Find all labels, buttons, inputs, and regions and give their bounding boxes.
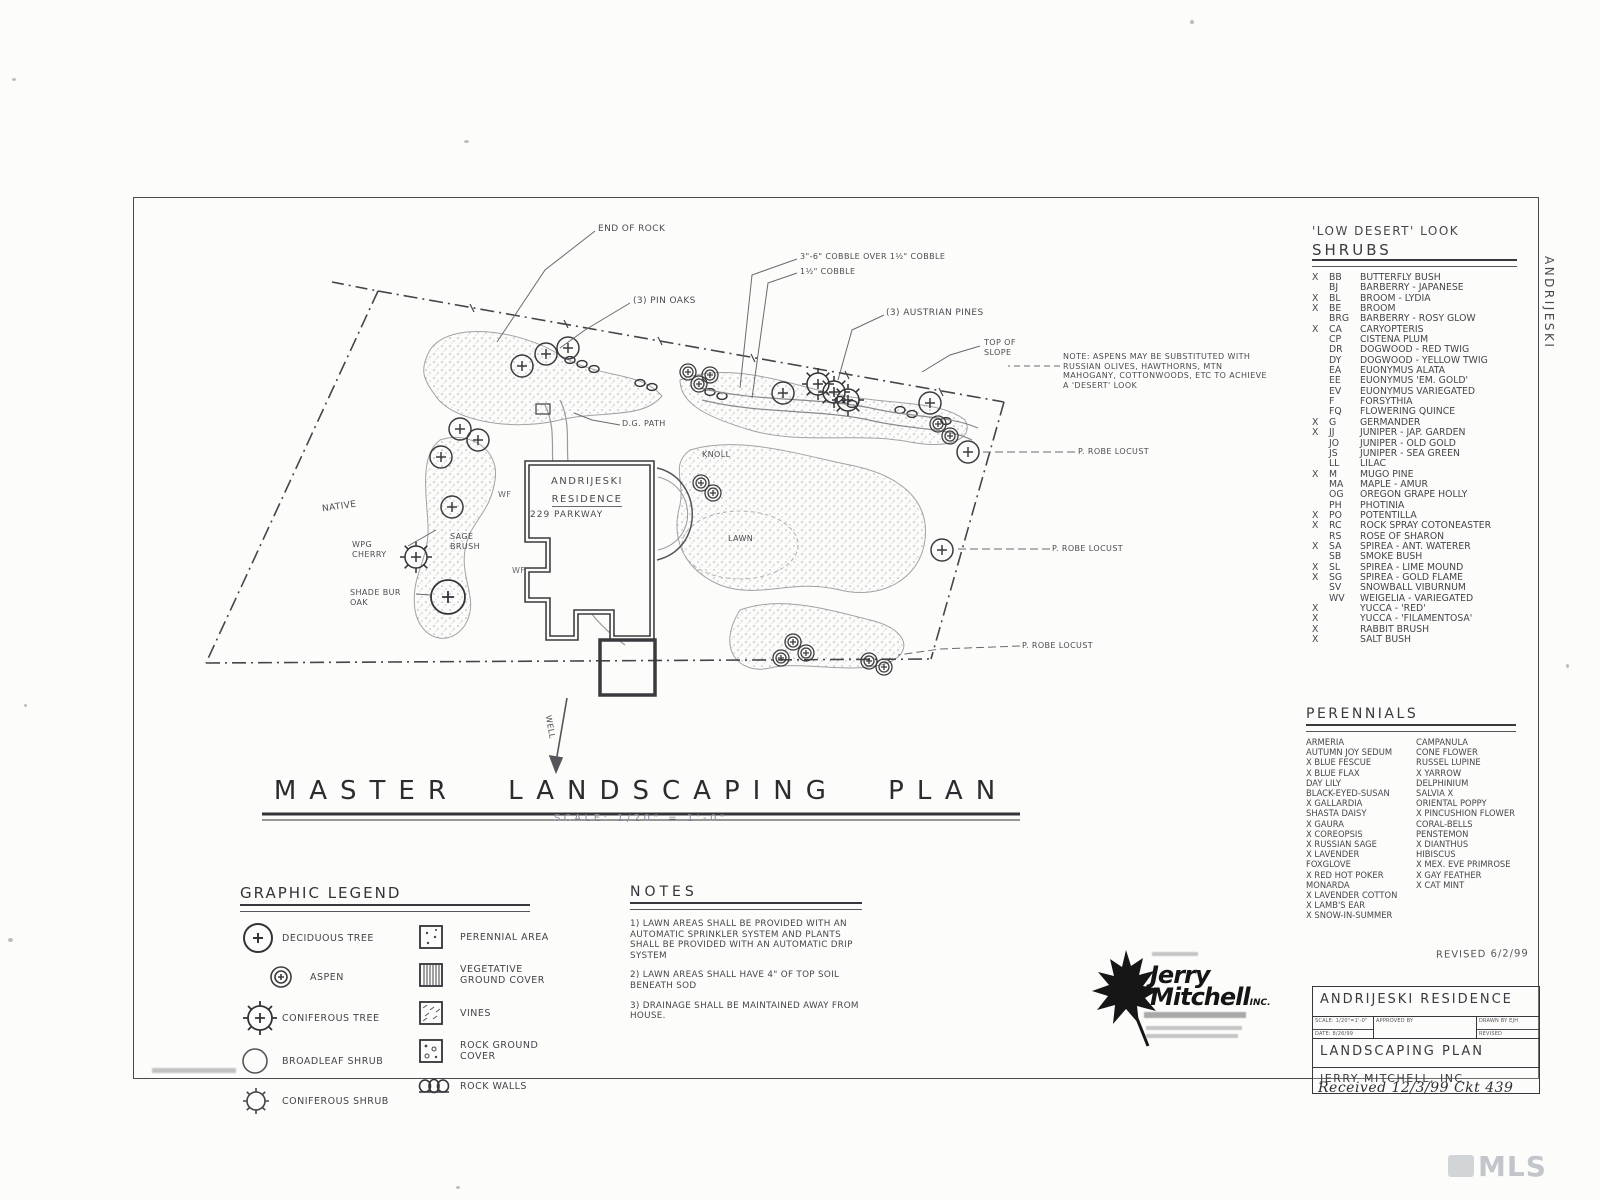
label-weeping-cherry: WPG CHERRY: [352, 540, 400, 560]
legend-label: ROCK GROUND COVER: [460, 1040, 568, 1062]
legend-label: VINES: [460, 1008, 568, 1019]
perennial-row: AUTUMN JOY SEDUM CONE FLOWER: [1306, 747, 1524, 757]
shrub-name: JUNIPER - JAP. GARDEN: [1360, 428, 1527, 438]
label-knoll: KNOLL: [702, 450, 730, 460]
drawn-by-label: DRAWN BY: [1479, 1018, 1507, 1024]
perennial-left: ARMERIA: [1306, 737, 1416, 747]
shrub-x-mark: X: [1312, 521, 1329, 531]
scale-value: 1/20"=1'-0": [1336, 1018, 1368, 1024]
firm-logo-block: Jerry MitchellINC.: [1088, 946, 1278, 1051]
perennial-right: X MEX. EVE PRIMROSE: [1416, 859, 1524, 869]
perennial-right: ORIENTAL POPPY: [1416, 798, 1524, 808]
scale-date-cell: SCALE: 1/20"=1'-0" DATE: 8/26/99: [1313, 1017, 1374, 1038]
shrub-list-item: JS JUNIPER - SEA GREEN: [1312, 449, 1527, 459]
note-item: 2) LAWN AREAS SHALL HAVE 4" OF TOP SOIL …: [630, 970, 865, 991]
perennial-left: BLACK-EYED-SUSAN: [1306, 788, 1416, 798]
shrub-x-mark: [1312, 459, 1329, 469]
shrub-x-mark: X: [1312, 304, 1329, 314]
coniferous-tree-icon: [240, 999, 282, 1037]
perennial-left: X RED HOT POKER: [1306, 870, 1416, 880]
divider: [1306, 724, 1516, 732]
shrub-name: LILAC: [1360, 459, 1527, 469]
house-name-line2: RESIDENCE: [552, 494, 623, 507]
shrub-x-mark: [1312, 439, 1329, 449]
drawn-by-value: EJH: [1509, 1018, 1518, 1024]
label-shade-bur-oak: SHADE BUR OAK: [350, 588, 402, 608]
shrub-x-mark: X: [1312, 542, 1329, 552]
legend-item-vegetative-ground-cover: VEGETATIVE GROUND COVER: [418, 962, 568, 988]
perennial-area-icon: [418, 924, 460, 950]
firm-suffix: INC.: [1250, 998, 1271, 1008]
callout-cobble: 1½" COBBLE: [800, 267, 855, 277]
callout-austrian-pines: (3) AUSTRIAN PINES: [886, 308, 984, 318]
shrub-x-mark: [1312, 449, 1329, 459]
label-sage-brush: SAGE BRUSH: [450, 532, 492, 552]
perennial-left: X BLUE FESCUE: [1306, 757, 1416, 767]
shrub-x-mark: [1312, 490, 1329, 500]
broadleaf-shrub-icon: [240, 1046, 282, 1076]
shrub-name: SALT BUSH: [1360, 635, 1527, 645]
sheet-title: LANDSCAPING PLAN: [1313, 1039, 1539, 1068]
house-name-line1: ANDRIJESKI: [528, 476, 646, 487]
perennial-list: PERENNIALS ARMERIA CAMPANULA AUTUMN JOY …: [1306, 706, 1524, 921]
perennial-left: X SNOW-IN-SUMMER: [1306, 910, 1416, 920]
house-footprint: [527, 404, 692, 695]
perennial-left: X GAURA: [1306, 819, 1416, 829]
legend-label: DECIDUOUS TREE: [282, 933, 402, 944]
callout-cobble-over: 3"-6" COBBLE OVER 1½" COBBLE: [800, 252, 945, 262]
title-block: ANDRIJESKI RESIDENCE SCALE: 1/20"=1'-0" …: [1312, 986, 1540, 1094]
house-address: 229 PARKWAY: [530, 510, 646, 520]
perennial-left: X LAMB'S EAR: [1306, 900, 1416, 910]
shrub-list-title-line1: 'LOW DESERT' LOOK: [1312, 224, 1527, 238]
perennial-left: X COREOPSIS: [1306, 829, 1416, 839]
shrub-x-mark: [1312, 387, 1329, 397]
perennial-left: DAY LILY: [1306, 778, 1416, 788]
shrub-code: JJ: [1329, 428, 1360, 438]
house-label: ANDRIJESKI RESIDENCE 229 PARKWAY: [528, 476, 646, 520]
shrub-list-item: X BL BROOM - LYDIA: [1312, 294, 1527, 304]
perennial-row: X LAVENDER HIBISCUS: [1306, 849, 1524, 859]
legend-item-vines: VINES: [418, 1000, 568, 1026]
shrub-code: [1329, 604, 1360, 614]
perennial-right: SALVIA X: [1416, 788, 1524, 798]
revised-label: REVISED: [1479, 1031, 1502, 1037]
perennial-left: MONARDA: [1306, 880, 1416, 890]
logo-fine-print: [1152, 952, 1198, 956]
perennial-row: X GAURA CORAL-BELLS: [1306, 819, 1524, 829]
date-label: DATE:: [1315, 1031, 1331, 1037]
callout-aspen-substitution-note: NOTE: ASPENS MAY BE SUBSTITUTED WITH RUS…: [1063, 352, 1275, 390]
perennial-row: X BLUE FLAX X YARROW: [1306, 768, 1524, 778]
perennial-row: BLACK-EYED-SUSAN SALVIA X: [1306, 788, 1524, 798]
approved-by-cell: APPROVED BY: [1374, 1017, 1477, 1038]
perennial-right: [1416, 910, 1524, 920]
drawn-by-cell: DRAWN BY EJH REVISED: [1477, 1017, 1539, 1038]
perennial-right: CAMPANULA: [1416, 737, 1524, 747]
shrub-code: [1329, 614, 1360, 624]
notes-section: NOTES 1) LAWN AREAS SHALL BE PROVIDED WI…: [630, 884, 875, 1022]
rock-walls-icon: [418, 1076, 460, 1096]
divider: [240, 904, 530, 912]
perennial-right: DELPHINIUM: [1416, 778, 1524, 788]
shrub-list-item: EV EUONYMUS VARIEGATED: [1312, 387, 1527, 397]
mls-watermark-text: MLS: [1478, 1150, 1547, 1183]
shrub-x-mark: [1312, 376, 1329, 386]
shrub-list-item: LL LILAC: [1312, 459, 1527, 469]
legend-label: CONIFEROUS TREE: [282, 1013, 402, 1024]
plant-code-wf: WF: [512, 566, 525, 576]
shrub-code: LL: [1329, 459, 1360, 469]
firm-address-line1: [1146, 1026, 1242, 1030]
perennial-left: X RUSSIAN SAGE: [1306, 839, 1416, 849]
shrub-list-title-line2: SHRUBS: [1312, 241, 1527, 259]
perennial-right: X CAT MINT: [1416, 880, 1524, 890]
shrub-x-mark: X: [1312, 470, 1329, 480]
deciduous-tree-icon: [240, 921, 282, 955]
received-stamp-note: Received 12/3/99 Ckt 439: [1318, 1080, 1513, 1096]
legend-label: CONIFEROUS SHRUB: [282, 1096, 402, 1107]
legend-label: ASPEN: [310, 972, 430, 983]
shrub-list-item: X SALT BUSH: [1312, 635, 1527, 645]
plan-title-block: MASTER LANDSCAPING PLAN SCALE: 1/20" = 1…: [262, 776, 1020, 824]
date-value: 8/26/99: [1333, 1031, 1354, 1037]
callout-top-of-slope: TOP OF SLOPE: [984, 338, 1030, 358]
shrub-x-mark: X: [1312, 428, 1329, 438]
approved-by-label: APPROVED BY: [1374, 1017, 1476, 1024]
shrub-x-mark: [1312, 583, 1329, 593]
label-lawn: LAWN: [728, 534, 753, 544]
legend-item-rock-walls: ROCK WALLS: [418, 1076, 568, 1096]
perennial-row: X SNOW-IN-SUMMER: [1306, 910, 1524, 920]
shrub-list: 'LOW DESERT' LOOK SHRUBS X BB BUTTERFLY …: [1312, 224, 1527, 645]
shrub-list-item: X JJ JUNIPER - JAP. GARDEN: [1312, 428, 1527, 438]
perennial-list-title: PERENNIALS: [1306, 706, 1524, 722]
perennial-right: PENSTEMON: [1416, 829, 1524, 839]
perennial-right: X YARROW: [1416, 768, 1524, 778]
shrub-code: [1329, 635, 1360, 645]
revised-note: REVISED 6/2/99: [1436, 948, 1529, 961]
label-dg-path: D.G. PATH: [622, 419, 666, 429]
shrub-x-mark: [1312, 335, 1329, 345]
note-item: 1) LAWN AREAS SHALL BE PROVIDED WITH AN …: [630, 919, 865, 961]
callout-purple-robe-locust-1: P. ROBE LOCUST: [1078, 447, 1149, 457]
perennial-right: CONE FLOWER: [1416, 747, 1524, 757]
sheet-microprint: [152, 1068, 236, 1073]
shrub-x-mark: X: [1312, 273, 1329, 283]
shrub-code: OG: [1329, 490, 1360, 500]
shrub-x-mark: [1312, 480, 1329, 490]
vegetative-ground-cover-icon: [418, 962, 460, 988]
perennial-left: X BLUE FLAX: [1306, 768, 1416, 778]
perennial-right: X GAY FEATHER: [1416, 870, 1524, 880]
callout-purple-robe-locust-3: P. ROBE LOCUST: [1022, 641, 1093, 651]
note-item: 3) DRAINAGE SHALL BE MAINTAINED AWAY FRO…: [630, 1001, 865, 1022]
mls-logo-icon: [1448, 1155, 1474, 1177]
legend-item-perennial-area: PERENNIAL AREA: [418, 924, 568, 950]
shrub-list-item: PH PHOTINIA: [1312, 501, 1527, 511]
divider: [1312, 259, 1517, 267]
graphic-legend-right-column: PERENNIAL AREA VEGETATIVE GROUND COVER V…: [418, 912, 568, 1096]
firm-address-line2: [1146, 1034, 1238, 1038]
plant-code-wf: WF: [498, 490, 511, 500]
perennial-rows: ARMERIA CAMPANULA AUTUMN JOY SEDUM CONE …: [1306, 737, 1524, 921]
perennial-row: SHASTA DAISY X PINCUSHION FLOWER: [1306, 808, 1524, 818]
perennial-right: X DIANTHUS: [1416, 839, 1524, 849]
perennial-row: MONARDA X CAT MINT: [1306, 880, 1524, 890]
shrub-rows: X BB BUTTERFLY BUSH BJ BARBERRY - JAPANE…: [1312, 273, 1527, 645]
firm-name: Jerry MitchellINC.: [1150, 964, 1271, 1014]
vines-icon: [418, 1000, 460, 1026]
perennial-row: FOXGLOVE X MEX. EVE PRIMROSE: [1306, 859, 1524, 869]
aspen-icon: [268, 964, 310, 990]
perennial-row: X RED HOT POKER X GAY FEATHER: [1306, 870, 1524, 880]
perennial-right: CORAL-BELLS: [1416, 819, 1524, 829]
legend-label: ROCK WALLS: [460, 1081, 568, 1092]
perennial-left: SHASTA DAISY: [1306, 808, 1416, 818]
scanned-landscape-plan-sheet: { "sheet": { "side_label": "ANDRIJESKI",…: [0, 0, 1600, 1200]
perennial-right: X PINCUSHION FLOWER: [1416, 808, 1524, 818]
shrub-x-mark: X: [1312, 325, 1329, 335]
perennial-row: X BLUE FESCUE RUSSEL LUPINE: [1306, 757, 1524, 767]
perennial-row: X LAVENDER COTTON: [1306, 890, 1524, 900]
callout-pin-oaks: (3) PIN OAKS: [633, 296, 696, 306]
scale-label: SCALE:: [1315, 1018, 1334, 1024]
rock-ground-cover-icon: [418, 1038, 460, 1064]
shrub-x-mark: [1312, 397, 1329, 407]
legend-label: BROADLEAF SHRUB: [282, 1056, 402, 1067]
perennial-left: AUTUMN JOY SEDUM: [1306, 747, 1416, 757]
perennial-row: X LAMB'S EAR: [1306, 900, 1524, 910]
perennial-row: X GALLARDIA ORIENTAL POPPY: [1306, 798, 1524, 808]
coniferous-shrub-icon: [240, 1085, 282, 1117]
project-name: ANDRIJESKI RESIDENCE: [1313, 987, 1539, 1017]
perennial-right: [1416, 890, 1524, 900]
notes-title: NOTES: [630, 884, 875, 900]
perennial-left: FOXGLOVE: [1306, 859, 1416, 869]
shrub-x-mark: [1312, 366, 1329, 376]
perennial-right: RUSSEL LUPINE: [1416, 757, 1524, 767]
perennial-row: DAY LILY DELPHINIUM: [1306, 778, 1524, 788]
plan-scale: SCALE: 1/20" = 1'-0": [262, 813, 1020, 824]
shrub-name: OREGON GRAPE HOLLY: [1360, 490, 1527, 500]
perennial-left: X LAVENDER: [1306, 849, 1416, 859]
perennial-left: X GALLARDIA: [1306, 798, 1416, 808]
perennial-left: X LAVENDER COTTON: [1306, 890, 1416, 900]
shrub-list-item: OG OREGON GRAPE HOLLY: [1312, 490, 1527, 500]
legend-item-rock-ground-cover: ROCK GROUND COVER: [418, 1038, 568, 1064]
perennial-row: X RUSSIAN SAGE X DIANTHUS: [1306, 839, 1524, 849]
firm-tagline-bar: [1144, 1012, 1246, 1018]
legend-label: PERENNIAL AREA: [460, 932, 568, 943]
sheet-side-label: ANDRIJESKI: [1542, 256, 1556, 349]
plan-title: MASTER LANDSCAPING PLAN: [262, 776, 1020, 806]
perennial-row: ARMERIA CAMPANULA: [1306, 737, 1524, 747]
shrub-x-mark: X: [1312, 635, 1329, 645]
legend-title: GRAPHIC LEGEND: [240, 884, 600, 902]
shrub-code: WV: [1329, 594, 1360, 604]
shrub-x-mark: [1312, 356, 1329, 366]
shrub-x-mark: [1312, 345, 1329, 355]
legend-label: VEGETATIVE GROUND COVER: [460, 964, 568, 986]
mls-watermark: MLS: [1448, 1146, 1548, 1186]
shrub-code: [1329, 625, 1360, 635]
firm-name-line2: Mitchell: [1150, 983, 1250, 1011]
shrub-x-mark: X: [1312, 573, 1329, 583]
callout-purple-robe-locust-2: P. ROBE LOCUST: [1052, 544, 1123, 554]
notes-items: 1) LAWN AREAS SHALL BE PROVIDED WITH AN …: [630, 919, 875, 1022]
shrub-list-item: X RABBIT BRUSH: [1312, 625, 1527, 635]
callout-end-of-rock: END OF ROCK: [598, 224, 665, 234]
perennial-right: HIBISCUS: [1416, 849, 1524, 859]
divider: [630, 902, 862, 910]
perennial-row: X COREOPSIS PENSTEMON: [1306, 829, 1524, 839]
perennial-right: [1416, 900, 1524, 910]
